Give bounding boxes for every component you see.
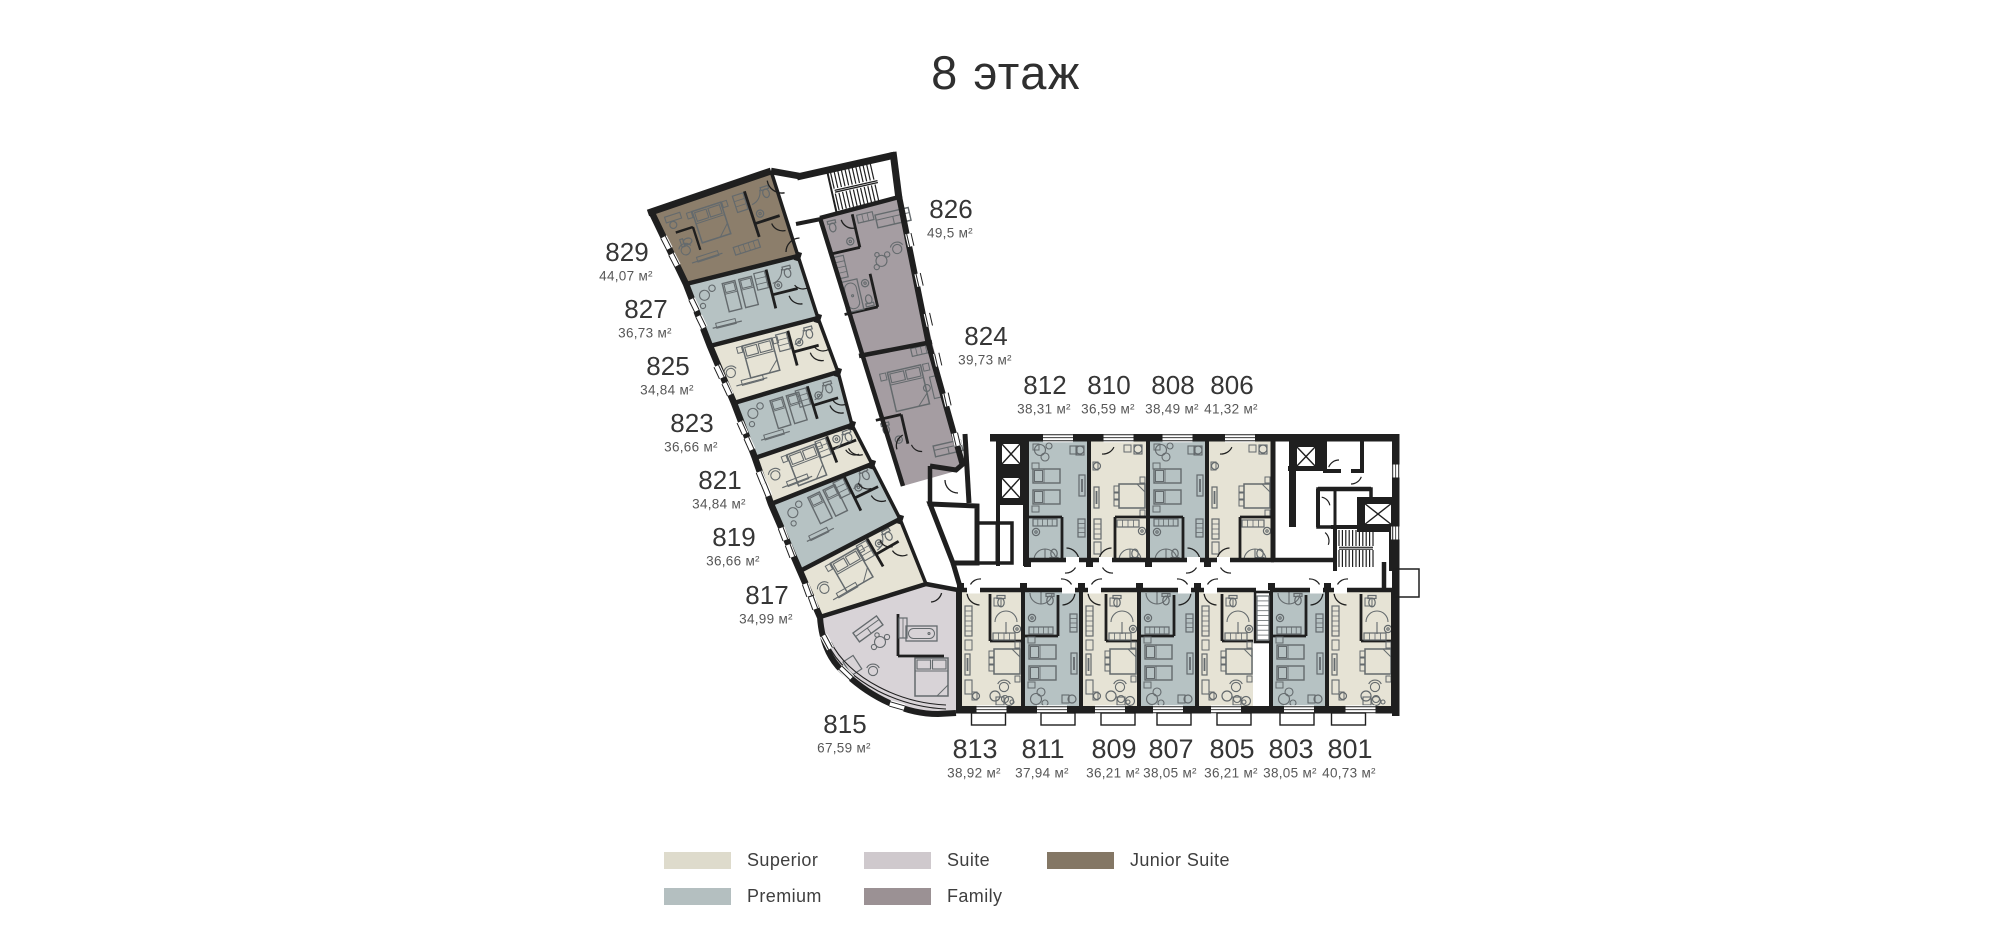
- svg-text:Family: Family: [947, 886, 1002, 906]
- svg-text:826: 826: [929, 194, 972, 224]
- svg-text:805: 805: [1209, 734, 1254, 764]
- svg-text:813: 813: [952, 734, 997, 764]
- svg-text:39,73 м²: 39,73 м²: [958, 353, 1012, 368]
- svg-text:38,05 м²: 38,05 м²: [1263, 766, 1317, 781]
- svg-text:810: 810: [1087, 370, 1130, 400]
- svg-text:38,05 м²: 38,05 м²: [1143, 766, 1197, 781]
- svg-text:823: 823: [670, 408, 713, 438]
- svg-text:40,73 м²: 40,73 м²: [1322, 766, 1376, 781]
- svg-text:36,66 м²: 36,66 м²: [664, 440, 718, 455]
- svg-text:Premium: Premium: [747, 886, 822, 906]
- svg-text:36,73 м²: 36,73 м²: [618, 326, 672, 341]
- svg-text:Junior Suite: Junior Suite: [1130, 850, 1230, 870]
- svg-text:8 этаж: 8 этаж: [931, 46, 1081, 99]
- svg-text:812: 812: [1023, 370, 1066, 400]
- svg-text:36,59 м²: 36,59 м²: [1081, 402, 1135, 417]
- svg-text:829: 829: [605, 237, 648, 267]
- svg-text:36,21 м²: 36,21 м²: [1086, 766, 1140, 781]
- svg-text:37,94 м²: 37,94 м²: [1015, 766, 1069, 781]
- svg-text:803: 803: [1268, 734, 1313, 764]
- svg-text:67,59 м²: 67,59 м²: [817, 741, 871, 756]
- svg-text:824: 824: [964, 321, 1007, 351]
- svg-text:41,32 м²: 41,32 м²: [1204, 402, 1258, 417]
- svg-text:806: 806: [1210, 370, 1253, 400]
- svg-text:817: 817: [745, 580, 788, 610]
- svg-text:Suite: Suite: [947, 850, 990, 870]
- svg-text:819: 819: [712, 522, 755, 552]
- svg-text:809: 809: [1091, 734, 1136, 764]
- svg-text:808: 808: [1151, 370, 1194, 400]
- svg-text:49,5 м²: 49,5 м²: [927, 226, 973, 241]
- svg-text:36,21 м²: 36,21 м²: [1204, 766, 1258, 781]
- svg-text:807: 807: [1148, 734, 1193, 764]
- svg-text:34,84 м²: 34,84 м²: [640, 383, 694, 398]
- svg-text:36,66 м²: 36,66 м²: [706, 554, 760, 569]
- svg-text:38,92 м²: 38,92 м²: [947, 766, 1001, 781]
- svg-text:821: 821: [698, 465, 741, 495]
- svg-text:815: 815: [823, 709, 866, 739]
- svg-text:44,07 м²: 44,07 м²: [599, 269, 653, 284]
- svg-text:801: 801: [1327, 734, 1372, 764]
- svg-text:Superior: Superior: [747, 850, 818, 870]
- svg-text:825: 825: [646, 351, 689, 381]
- svg-text:38,31 м²: 38,31 м²: [1017, 402, 1071, 417]
- svg-text:811: 811: [1021, 734, 1064, 764]
- svg-text:827: 827: [624, 294, 667, 324]
- svg-text:34,99 м²: 34,99 м²: [739, 612, 793, 627]
- svg-text:38,49 м²: 38,49 м²: [1145, 402, 1199, 417]
- svg-text:34,84 м²: 34,84 м²: [692, 497, 746, 512]
